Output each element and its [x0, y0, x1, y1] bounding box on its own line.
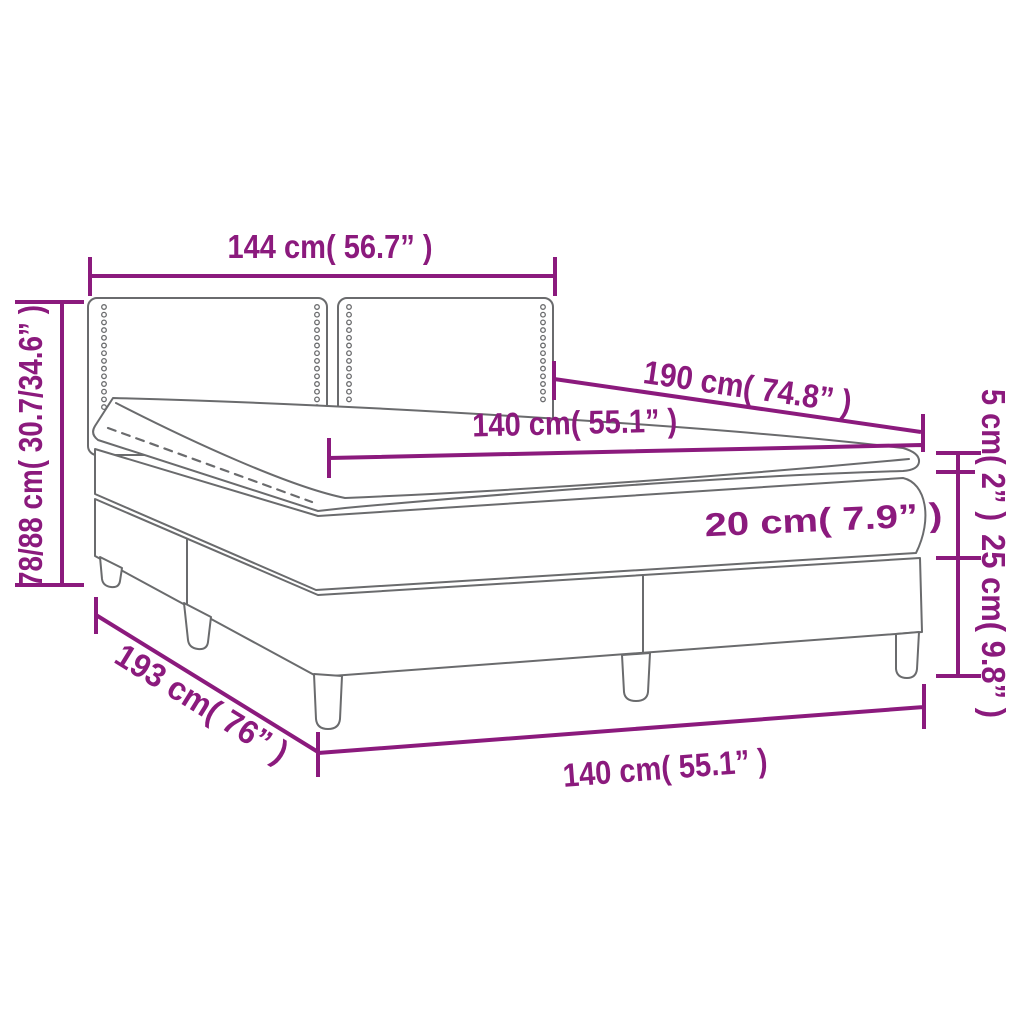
- headboard-stud-icon: [315, 359, 320, 364]
- dim-base-length-label: 193 cm( 76” ): [109, 636, 295, 770]
- headboard-stud-icon: [315, 336, 320, 341]
- headboard-stud-icon: [102, 382, 107, 387]
- dimension-diagram-page: 144 cm( 56.7” ) 78/88 cm( 30.7/34.6” ) 1…: [0, 0, 1024, 1024]
- headboard-stud-icon: [102, 351, 107, 356]
- headboard-stud-icon: [315, 320, 320, 325]
- headboard-stud-icon: [102, 389, 107, 394]
- headboard-stud-icon: [347, 382, 352, 387]
- headboard-stud-icon: [541, 397, 546, 402]
- headboard-stud-icon: [347, 343, 352, 348]
- dim-right-heights-line: [936, 453, 981, 676]
- headboard-stud-icon: [315, 343, 320, 348]
- leg-front-middle: [622, 653, 650, 701]
- headboard-stud-icon: [541, 336, 546, 341]
- dim-base-height-label: 25 cm( 9.8” ): [975, 534, 1012, 718]
- headboard-stud-icon: [347, 389, 352, 394]
- headboard-stud-icon: [315, 328, 320, 333]
- headboard-stud-icon: [102, 305, 107, 310]
- dim-headboard-width-label: 144 cm( 56.7” ): [228, 228, 433, 265]
- headboard-stud-icon: [541, 328, 546, 333]
- headboard-stud-icon: [102, 374, 107, 379]
- headboard-stud-icon: [347, 305, 352, 310]
- headboard-stud-icon: [315, 351, 320, 356]
- headboard-stud-icon: [541, 359, 546, 364]
- headboard-stud-icon: [347, 366, 352, 371]
- headboard-stud-icon: [102, 336, 107, 341]
- headboard-stud-icon: [347, 336, 352, 341]
- bed-diagram: 144 cm( 56.7” ) 78/88 cm( 30.7/34.6” ) 1…: [0, 0, 1024, 1024]
- headboard-stud-icon: [541, 374, 546, 379]
- leg-front-corner: [314, 674, 342, 729]
- headboard-stud-icon: [347, 328, 352, 333]
- leg-foot-right: [896, 632, 919, 678]
- headboard-stud-icon: [347, 320, 352, 325]
- headboard-stud-icon: [347, 312, 352, 317]
- headboard-stud-icon: [102, 343, 107, 348]
- headboard-stud-icon: [541, 305, 546, 310]
- headboard-stud-icon: [315, 374, 320, 379]
- headboard-stud-icon: [102, 359, 107, 364]
- headboard-stud-icon: [541, 312, 546, 317]
- headboard-stud-icon: [541, 366, 546, 371]
- headboard-stud-icon: [102, 312, 107, 317]
- headboard-stud-icon: [347, 374, 352, 379]
- headboard-stud-icon: [102, 320, 107, 325]
- dim-mattress-width-label: 140 cm( 55.1” ): [472, 402, 678, 444]
- dim-base-width-label: 140 cm( 55.1” ): [562, 741, 769, 794]
- dim-topper-height-label: 5 cm( 2” ): [975, 389, 1012, 521]
- headboard-stud-icon: [541, 382, 546, 387]
- headboard-stud-icon: [347, 397, 352, 402]
- headboard-stud-icon: [315, 305, 320, 310]
- dim-base-width-line: [318, 684, 924, 753]
- headboard-stud-icon: [102, 328, 107, 333]
- headboard-stud-icon: [347, 351, 352, 356]
- headboard-stud-icon: [102, 397, 107, 402]
- headboard-stud-icon: [347, 359, 352, 364]
- headboard-stud-icon: [541, 351, 546, 356]
- headboard-stud-icon: [315, 397, 320, 402]
- headboard-stud-icon: [315, 382, 320, 387]
- headboard-stud-icon: [315, 312, 320, 317]
- headboard-stud-icon: [541, 320, 546, 325]
- headboard-stud-icon: [315, 366, 320, 371]
- headboard-stud-icon: [541, 389, 546, 394]
- headboard-stud-icon: [102, 366, 107, 371]
- dim-total-height-label: 78/88 cm( 30.7/34.6” ): [12, 305, 49, 587]
- headboard-stud-icon: [315, 389, 320, 394]
- headboard-stud-icon: [541, 343, 546, 348]
